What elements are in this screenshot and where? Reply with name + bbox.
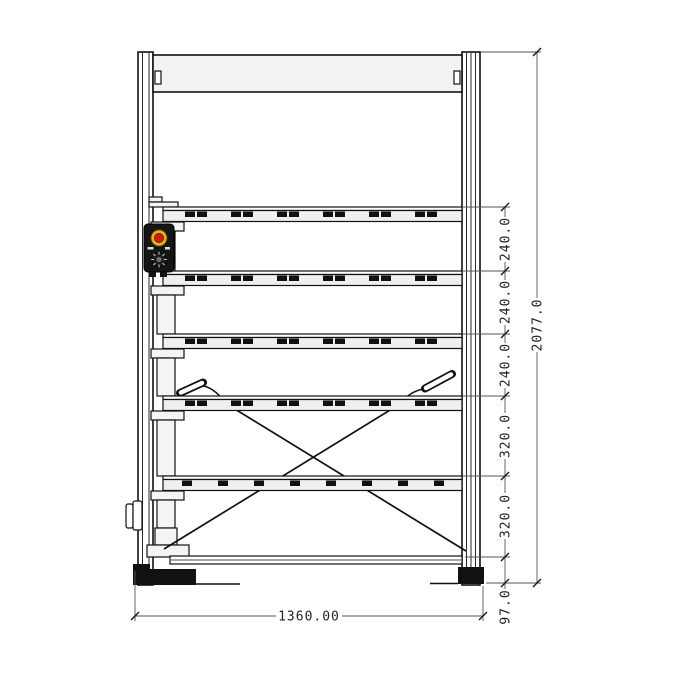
roller-row	[168, 481, 458, 487]
overall-width-label: 1360.00	[278, 610, 340, 625]
dim-label-240-1: 240.0	[499, 217, 514, 261]
header-clip-left	[155, 71, 161, 84]
right-post	[462, 52, 480, 585]
overall-height-label: 2077.0	[531, 299, 546, 352]
left-foot	[133, 564, 196, 585]
shelf-level-2	[163, 271, 462, 286]
dim-label-320-2: 320.0	[499, 494, 514, 538]
roller-row	[168, 339, 458, 345]
roller-row	[168, 401, 458, 407]
shelf-level-3	[163, 334, 462, 349]
selector-knob-icon	[151, 252, 167, 268]
mast-bracket	[151, 286, 184, 295]
shelf-level-5	[163, 476, 462, 491]
mast-bracket	[151, 349, 184, 358]
dim-label-97: 97.0	[499, 589, 514, 624]
roller-row	[168, 276, 458, 282]
control-box-foot-right	[160, 272, 167, 277]
control-box-label-right	[165, 247, 170, 250]
shelf-level-1	[163, 207, 462, 222]
base	[126, 501, 484, 585]
dim-label-240-3: 240.0	[499, 343, 514, 387]
mast-top-cap2	[149, 202, 178, 207]
rack-front-view-svg: 240.0 240.0 240.0 320.0 320.0 97.0 2077.…	[0, 0, 675, 675]
rack-drawing-canvas: 240.0 240.0 240.0 320.0 320.0 97.0 2077.…	[0, 0, 675, 675]
roller-row	[168, 212, 458, 218]
control-box-foot-left	[149, 272, 156, 277]
mast-column	[157, 295, 175, 334]
drive-motor	[126, 501, 142, 530]
control-box-label-left	[148, 247, 154, 250]
dim-label-240-2: 240.0	[499, 280, 514, 324]
mast-column	[157, 420, 175, 476]
turnbuckle-left	[180, 383, 203, 394]
shelf-levels	[163, 207, 462, 491]
top-header-panel	[153, 55, 462, 92]
frame	[138, 52, 480, 585]
turnbuckle-right	[425, 374, 452, 389]
mast-bracket	[151, 411, 184, 420]
dim-label-320-1: 320.0	[499, 414, 514, 458]
mast-bracket	[151, 491, 184, 500]
estop-button-icon	[151, 230, 167, 246]
shelf-level-4	[163, 396, 462, 411]
mast-top-cap	[149, 197, 162, 202]
estop-control-box	[144, 224, 174, 277]
right-foot	[458, 567, 484, 584]
mast-column	[157, 500, 175, 528]
mast-column	[157, 358, 175, 396]
header-clip-right	[454, 71, 460, 84]
